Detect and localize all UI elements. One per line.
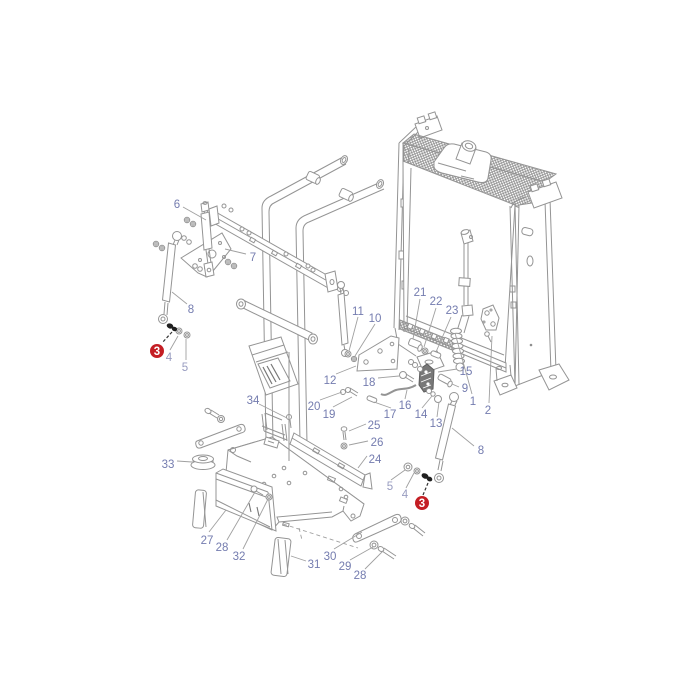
svg-text:16: 16 [399,400,412,412]
svg-text:3: 3 [154,346,160,358]
svg-text:34: 34 [247,395,260,407]
svg-text:24: 24 [369,454,382,466]
svg-text:4: 4 [166,352,173,364]
svg-text:22: 22 [430,296,443,308]
svg-text:6: 6 [174,199,180,211]
svg-text:20: 20 [308,401,321,413]
svg-text:27: 27 [201,535,214,547]
svg-text:29: 29 [339,561,352,573]
svg-text:32: 32 [233,551,246,563]
svg-text:14: 14 [415,409,428,421]
svg-text:31: 31 [308,559,321,571]
svg-text:11: 11 [352,306,364,318]
svg-text:10: 10 [369,313,382,325]
svg-text:3: 3 [419,498,425,510]
svg-text:17: 17 [384,409,397,421]
svg-text:12: 12 [324,375,337,387]
svg-text:15: 15 [460,366,473,378]
svg-text:13: 13 [430,418,443,430]
svg-text:2: 2 [485,405,491,417]
svg-text:9: 9 [462,383,468,395]
svg-text:5: 5 [387,481,393,493]
svg-text:1: 1 [470,396,476,408]
svg-text:28: 28 [216,542,229,554]
svg-text:7: 7 [250,252,256,264]
svg-text:18: 18 [363,377,376,389]
svg-text:30: 30 [324,551,337,563]
svg-text:5: 5 [182,362,188,374]
svg-text:4: 4 [402,489,409,501]
svg-text:26: 26 [371,437,384,449]
svg-text:25: 25 [368,420,381,432]
svg-text:21: 21 [414,287,427,299]
svg-text:8: 8 [188,304,194,316]
svg-text:23: 23 [446,305,459,317]
svg-text:33: 33 [162,459,175,471]
svg-text:28: 28 [354,570,367,582]
svg-text:19: 19 [323,409,336,421]
svg-text:8: 8 [478,445,484,457]
